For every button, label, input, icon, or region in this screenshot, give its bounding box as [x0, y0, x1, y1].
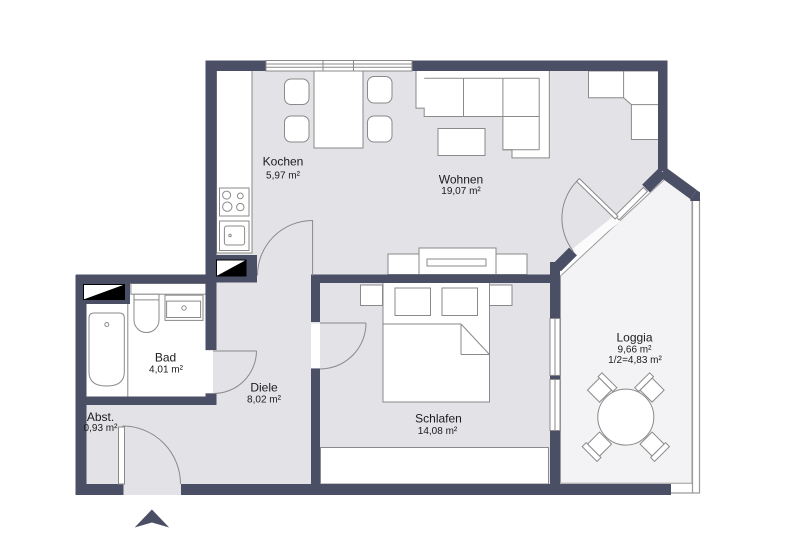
svg-text:Schlafen: Schlafen — [415, 412, 462, 426]
svg-text:14,08 m²: 14,08 m² — [418, 426, 458, 437]
svg-text:9,66 m²: 9,66 m² — [618, 345, 653, 356]
svg-text:Kochen: Kochen — [263, 155, 304, 169]
svg-text:Diele: Diele — [250, 381, 278, 395]
svg-text:Loggia: Loggia — [616, 331, 652, 345]
svg-text:0,93 m²: 0,93 m² — [84, 423, 119, 434]
svg-text:4,01 m²: 4,01 m² — [149, 364, 184, 375]
svg-text:5,97 m²: 5,97 m² — [266, 171, 301, 182]
svg-text:Bad: Bad — [155, 351, 176, 365]
svg-text:Wohnen: Wohnen — [439, 173, 483, 187]
svg-text:8,02 m²: 8,02 m² — [247, 394, 282, 405]
svg-text:1/2=4,83 m²: 1/2=4,83 m² — [608, 355, 662, 366]
svg-text:19,07 m²: 19,07 m² — [441, 186, 481, 197]
